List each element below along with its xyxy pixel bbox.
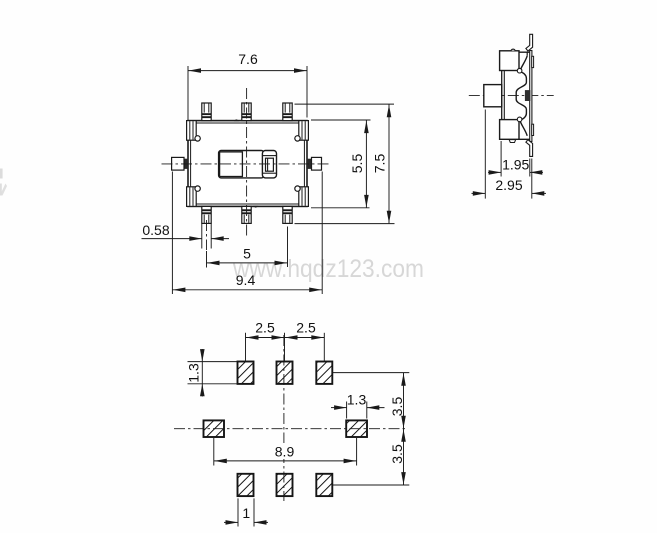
svg-text:7.6: 7.6 [238, 51, 258, 67]
svg-text:2.5: 2.5 [255, 320, 275, 336]
svg-text:1.95: 1.95 [502, 156, 529, 172]
svg-text:www.hqdz123.com: www.hqdz123.com [232, 255, 424, 283]
svg-text:3.5: 3.5 [389, 444, 405, 464]
svg-text:1: 1 [242, 505, 250, 521]
svg-text:5.5: 5.5 [349, 154, 365, 174]
svg-text:2.5: 2.5 [296, 320, 316, 336]
svg-text:5: 5 [243, 245, 251, 261]
svg-text:7.5: 7.5 [372, 154, 388, 174]
svg-text:1.3: 1.3 [347, 392, 367, 408]
svg-text:2.95: 2.95 [495, 177, 522, 193]
svg-text:1.3: 1.3 [186, 363, 202, 383]
svg-text:8.9: 8.9 [275, 443, 295, 459]
svg-text:9.4: 9.4 [236, 272, 256, 288]
svg-text:3.5: 3.5 [389, 397, 405, 417]
svg-text:0.58: 0.58 [142, 222, 169, 238]
